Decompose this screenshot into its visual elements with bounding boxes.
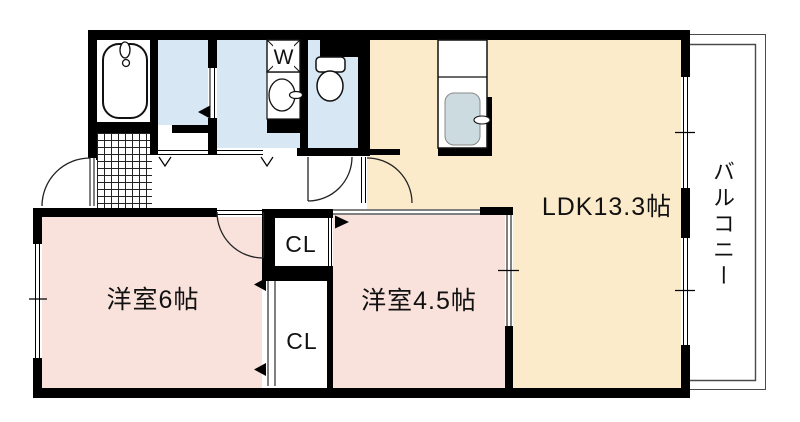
entry-door: [42, 158, 96, 206]
floor-plan: W LDK13.3帖 洋室6帖 洋室4.5帖 CL CL バルコニー: [0, 0, 800, 422]
label-bedroom-6: 洋室6帖: [63, 285, 243, 315]
ldk-door: [360, 157, 412, 203]
window-right-lower: [675, 238, 695, 345]
hall-door-track-right: [217, 149, 273, 166]
bathtub-icon: [103, 42, 147, 118]
toilet-door: [308, 157, 352, 201]
hall-door-track-left: [158, 149, 208, 166]
window-right-upper: [675, 77, 695, 188]
label-ldk: LDK13.3帖: [517, 192, 697, 222]
washbasin-icon: [267, 72, 303, 119]
washer-label: W: [274, 46, 294, 69]
label-closet-upper: CL: [275, 229, 327, 259]
toilet-icon: [316, 57, 345, 101]
washer-pan-icon: W: [267, 40, 300, 72]
bedroom6-door: [217, 209, 264, 258]
closet-upper-door: [327, 218, 333, 266]
kitchen-sink-icon: [438, 40, 490, 148]
closet-lower-door: [254, 278, 277, 386]
bedroom45-door-track: [333, 209, 480, 229]
label-closet-lower: CL: [277, 326, 327, 356]
washroom-door: [198, 68, 217, 119]
label-bedroom-45: 洋室4.5帖: [329, 286, 509, 316]
window-left: [29, 244, 47, 358]
label-balcony: バルコニー: [704, 140, 740, 310]
